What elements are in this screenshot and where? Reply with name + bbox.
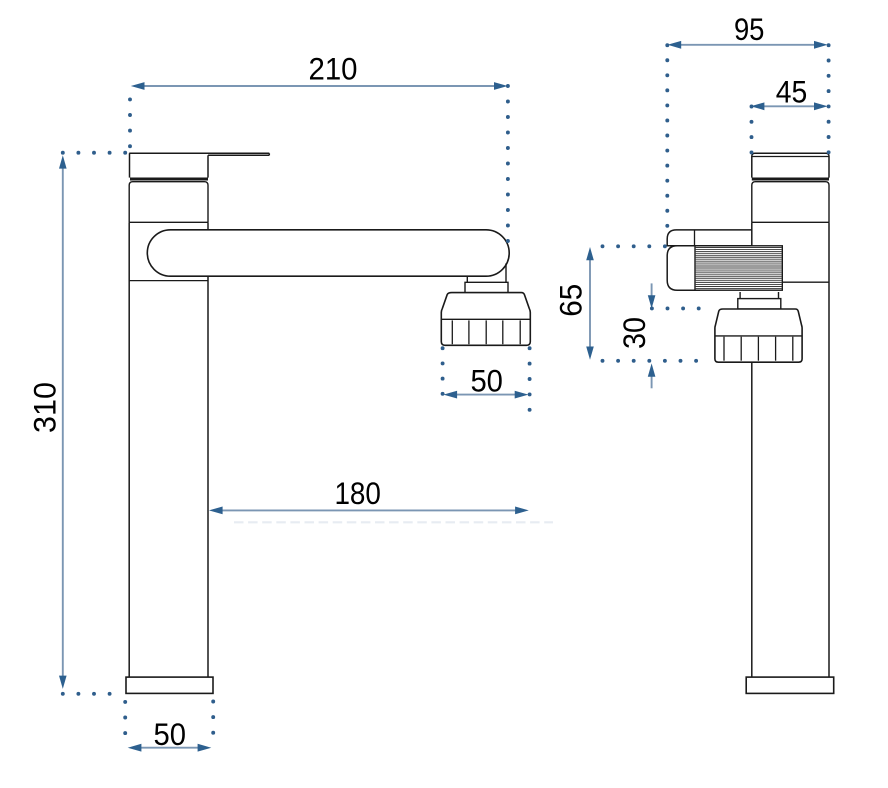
svg-text:180: 180 xyxy=(334,475,381,511)
svg-text:95: 95 xyxy=(734,11,765,47)
svg-text:310: 310 xyxy=(27,382,63,433)
svg-text:50: 50 xyxy=(470,363,503,399)
svg-text:30: 30 xyxy=(616,317,652,349)
svg-text:50: 50 xyxy=(154,716,187,752)
svg-text:45: 45 xyxy=(776,73,808,109)
svg-text:210: 210 xyxy=(309,51,358,87)
svg-text:65: 65 xyxy=(553,284,589,317)
